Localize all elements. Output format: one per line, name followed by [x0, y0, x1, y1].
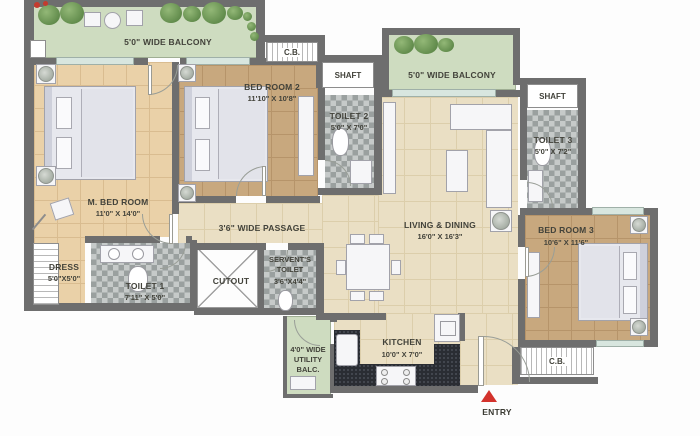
cupboard-bottom: C.B.: [520, 347, 594, 375]
bush-icon: [243, 12, 252, 21]
bush-icon: [394, 36, 414, 54]
dress-dims: 5'0"X5'0": [48, 274, 80, 283]
shaft-top: SHAFT: [322, 62, 374, 88]
blanket: [81, 89, 133, 177]
balcony-top-right-label: 5'0" WIDE BALCONY: [408, 70, 496, 80]
plant-icon: [632, 320, 646, 334]
bush-icon: [438, 38, 454, 52]
wall: [650, 208, 658, 347]
toilet1-dims: 7'11" X 5'0": [125, 293, 165, 302]
wall: [318, 188, 382, 195]
door-leaf: [262, 166, 266, 196]
wall: [374, 55, 382, 195]
utility-balcony-label-1: 4'0" WIDE: [290, 345, 325, 354]
balcony-top-left-label: 5'0" WIDE BALCONY: [124, 37, 212, 47]
wall: [518, 279, 525, 347]
pillow: [56, 97, 72, 129]
tv-unit-icon: [383, 102, 396, 194]
balcony-chair-icon: [126, 10, 143, 26]
bush-icon: [202, 2, 226, 24]
chair-icon: [336, 260, 346, 275]
dining-table-icon: [346, 244, 390, 290]
wall: [258, 250, 264, 310]
bush-icon: [38, 5, 60, 25]
window: [596, 340, 644, 347]
bush-icon: [247, 22, 256, 31]
chair-icon: [369, 234, 384, 244]
wall: [258, 35, 324, 42]
toilet3-label: TOILET 3: [534, 135, 573, 145]
shaft-right-label: SHAFT: [537, 92, 568, 101]
wall: [513, 28, 520, 84]
bush-icon: [250, 32, 259, 41]
toilet1-label: TOILET 1: [126, 281, 165, 291]
balcony-table-icon: [104, 12, 121, 29]
headboard: [640, 244, 647, 320]
stove-icon: [376, 366, 416, 386]
window: [392, 89, 496, 97]
entry-label: ENTRY: [482, 407, 512, 417]
pillow: [195, 139, 210, 171]
door-leaf: [169, 214, 173, 244]
cb-top-label: C.B.: [282, 48, 302, 57]
plant-icon: [492, 212, 510, 230]
wall: [283, 316, 287, 396]
utility-balcony-label-3: BALC.: [297, 365, 320, 374]
wall: [520, 84, 527, 180]
entry-arrow-icon: [481, 390, 497, 402]
living-dining-dims: 16'0" X 16'3": [418, 232, 463, 241]
utility-balcony-label-2: UTILITY: [294, 355, 322, 364]
servant-toilet-label-1: SERVENT'S: [269, 255, 311, 264]
coffee-table-icon: [446, 150, 468, 192]
wall: [578, 78, 586, 215]
plant-icon: [180, 186, 194, 200]
chair-icon: [391, 260, 401, 275]
m-bedroom-label: M. BED ROOM: [88, 197, 149, 207]
sofa-icon: [450, 104, 512, 130]
wall: [382, 28, 520, 35]
washbasin-icon: [132, 248, 144, 260]
wall: [316, 313, 386, 320]
utility-box: [290, 376, 316, 390]
wall: [330, 316, 337, 322]
bedroom2-label: BED ROOM 2: [244, 82, 300, 92]
pillow: [56, 137, 72, 169]
headboard: [185, 87, 192, 181]
burner: [403, 369, 410, 376]
wall: [194, 243, 266, 250]
window: [592, 207, 644, 215]
master-bed-icon: [44, 86, 136, 180]
bush-icon: [160, 3, 182, 23]
wall: [194, 308, 324, 315]
bedroom2-dims: 11'10" X 10'8": [248, 94, 297, 103]
plant-icon: [632, 218, 646, 232]
pillow: [623, 286, 637, 314]
washbasin-icon: [108, 248, 120, 260]
door-leaf: [148, 65, 152, 95]
wall: [318, 88, 325, 160]
fridge-icon: [336, 334, 358, 366]
wall: [266, 196, 320, 203]
kitchen-dims: 10'0" X 7'0": [382, 350, 423, 359]
burner: [381, 378, 388, 385]
bush-icon: [60, 2, 84, 24]
kitchen-sink-icon: [434, 314, 460, 342]
flower-icon: [43, 1, 48, 6]
toilet-icon: [278, 290, 293, 311]
toilet2-dims: 5'0" X 7'0": [331, 123, 368, 132]
passage-label: 3'6" WIDE PASSAGE: [219, 223, 306, 233]
window: [56, 57, 134, 65]
floor-plan: SHAFT SHAFT C.B. C.B.: [0, 0, 700, 436]
sofa-icon: [486, 130, 512, 208]
flower-icon: [34, 2, 40, 8]
wall: [316, 55, 382, 62]
living-dining-label: LIVING & DINING: [404, 220, 476, 230]
bush-icon: [183, 6, 201, 22]
kitchen-label: KITCHEN: [382, 337, 421, 347]
shaft-right: SHAFT: [527, 84, 578, 108]
kitchen-counter: [434, 344, 460, 386]
bedroom3-label: BED ROOM 3: [538, 225, 594, 235]
toilet2-label: TOILET 2: [330, 111, 369, 121]
bush-icon: [414, 34, 438, 54]
bush-icon: [227, 6, 243, 20]
bedroom3-dims: 10'6" X 11'6": [544, 238, 588, 247]
shaft-top-label: SHAFT: [333, 71, 364, 80]
chair-icon: [350, 234, 365, 244]
toilet-icon: [332, 128, 349, 156]
bed3-icon: [578, 243, 648, 321]
wall: [283, 394, 333, 398]
blanket: [581, 246, 620, 318]
balcony-niche: [30, 40, 46, 58]
wall: [190, 240, 197, 310]
door-leaf: [525, 247, 529, 277]
wall: [382, 28, 389, 97]
wall: [520, 208, 586, 215]
burner: [381, 369, 388, 376]
chair-icon: [350, 291, 365, 301]
m-bedroom-dims: 11'0" X 14'0": [96, 209, 140, 218]
balcony-chair-icon: [84, 12, 101, 27]
toilet3-dims: 5'0" X 7'2": [535, 147, 572, 156]
dress-label: DRESS: [49, 262, 79, 272]
plant-icon: [180, 66, 194, 80]
wall: [85, 236, 160, 243]
chair-icon: [369, 291, 384, 301]
servant-toilet-dims: 3'6"X4'4": [274, 277, 306, 286]
sink-basin: [440, 321, 456, 336]
wall: [330, 385, 478, 393]
pillow: [623, 252, 637, 280]
pillow: [195, 97, 210, 129]
wardrobe-icon: [298, 96, 314, 176]
burner: [403, 378, 410, 385]
cb-bottom-label: C.B.: [547, 357, 567, 366]
servant-toilet-label-2: TOILET: [277, 265, 304, 274]
plant-icon: [38, 66, 54, 82]
plant-icon: [38, 168, 54, 184]
wall: [518, 215, 525, 247]
sink-icon: [350, 160, 372, 184]
cutout-label: CUTOUT: [213, 276, 249, 286]
cupboard-top: C.B.: [266, 42, 318, 62]
